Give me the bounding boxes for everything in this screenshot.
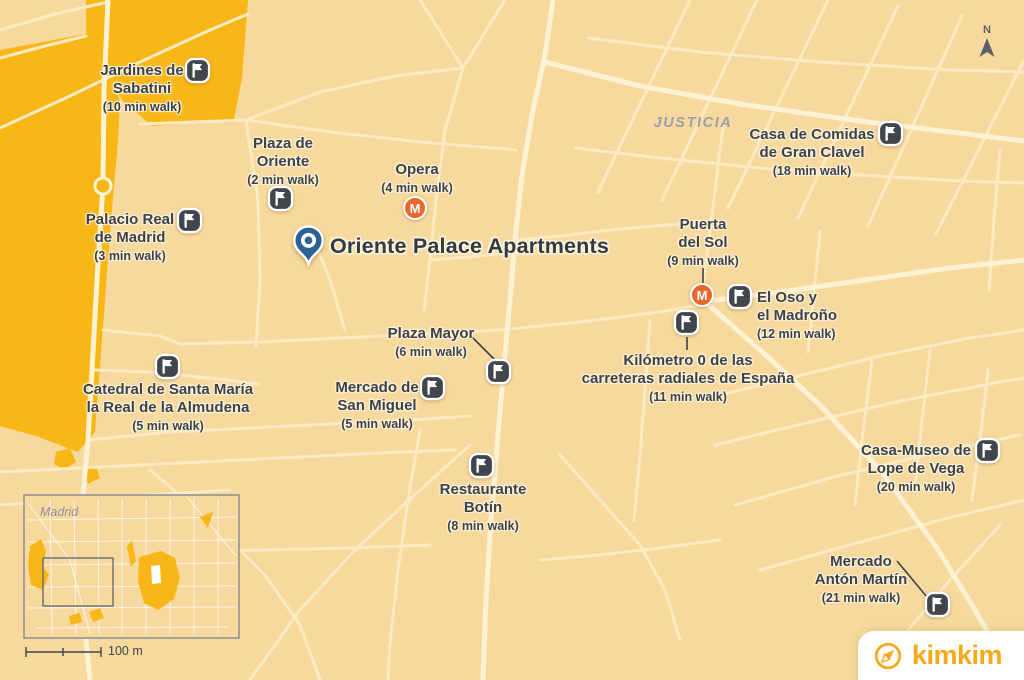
kimkim-brand-card: kimkim <box>858 631 1024 680</box>
poi-name: Botín <box>440 499 527 517</box>
poi-walk-time: (21 min walk) <box>815 590 907 606</box>
poi-mercado-san-miguel: Mercado de San Miguel (5 min walk) <box>335 379 418 432</box>
poi-walk-time: (5 min walk) <box>83 418 253 434</box>
flag-icon-kilometro-0 <box>673 309 700 336</box>
poi-name: de Madrid <box>86 229 174 247</box>
flag-icon-casa-museo <box>974 437 1001 464</box>
poi-walk-time: (20 min walk) <box>861 479 971 495</box>
metro-icon-opera: M <box>403 196 427 220</box>
poi-walk-time: (9 min walk) <box>667 253 739 269</box>
poi-jardines-de-sabatini: Jardines de Sabatini (10 min walk) <box>100 62 183 115</box>
poi-name: Plaza Mayor <box>388 325 475 343</box>
poi-name: El Oso y <box>757 289 837 307</box>
poi-name: Mercado <box>815 553 907 571</box>
flag-icon-el-oso <box>726 283 753 310</box>
flag-icon-botin <box>468 452 495 479</box>
flag-icon-casa-de-comidas <box>877 120 904 147</box>
poi-name: Puerta <box>667 216 739 234</box>
flag-icon-plaza-mayor <box>485 358 512 385</box>
poi-name: carreteras radiales de España <box>582 370 795 388</box>
poi-name: de Gran Clavel <box>749 144 874 162</box>
poi-name: Mercado de <box>335 379 418 397</box>
poi-name: Plaza de <box>247 135 319 153</box>
poi-plaza-mayor: Plaza Mayor (6 min walk) <box>388 325 475 360</box>
flag-icon-san-miguel <box>419 374 446 401</box>
poi-plaza-de-oriente: Plaza de Oriente (2 min walk) <box>247 135 319 188</box>
compass-icon <box>873 641 903 671</box>
neighborhood-label-justicia: JUSTICIA <box>654 115 733 131</box>
poi-name: Restaurante <box>440 481 527 499</box>
inset-city-label: Madrid <box>40 505 78 519</box>
poi-name: del Sol <box>667 234 739 252</box>
flag-icon-catedral <box>154 353 181 380</box>
flag-icon-palacio-real <box>176 207 203 234</box>
poi-name: Oriente <box>247 153 319 171</box>
poi-el-oso-y-el-madrono: El Oso y el Madroño (12 min walk) <box>757 289 837 342</box>
poi-name: Casa de Comidas <box>749 126 874 144</box>
main-place-title: Oriente Palace Apartments <box>330 234 609 259</box>
poi-mercado-anton-martin: Mercado Antón Martín (21 min walk) <box>815 553 907 606</box>
flag-icon-jardines <box>184 57 211 84</box>
scale-bar-label: 100 m <box>108 644 143 658</box>
north-indicator: N <box>975 24 999 36</box>
poi-walk-time: (8 min walk) <box>440 518 527 534</box>
metro-letter: M <box>410 201 421 216</box>
poi-puerta-del-sol: Puerta del Sol (9 min walk) <box>667 216 739 269</box>
poi-name: Palacio Real <box>86 211 174 229</box>
poi-name: San Miguel <box>335 397 418 415</box>
poi-casa-de-comidas: Casa de Comidas de Gran Clavel (18 min w… <box>749 126 874 179</box>
poi-walk-time: (4 min walk) <box>381 180 453 196</box>
metro-letter: M <box>697 288 708 303</box>
poi-name: Kilómetro 0 de las <box>582 352 795 370</box>
poi-kilometro-0: Kilómetro 0 de las carreteras radiales d… <box>582 352 795 405</box>
metro-icon-puerta-del-sol: M <box>690 283 714 307</box>
map-canvas: Jardines de Sabatini (10 min walk) Plaza… <box>0 0 1024 680</box>
poi-name: el Madroño <box>757 307 837 325</box>
brand-name: kimkim <box>912 641 1002 669</box>
north-label: N <box>975 24 999 36</box>
poi-walk-time: (11 min walk) <box>582 389 795 405</box>
poi-walk-time: (5 min walk) <box>335 416 418 432</box>
poi-walk-time: (2 min walk) <box>247 172 319 188</box>
poi-opera: Opera (4 min walk) <box>381 161 453 196</box>
poi-name: la Real de la Almudena <box>83 399 253 417</box>
poi-name: Lope de Vega <box>861 460 971 478</box>
location-pin-icon <box>292 224 325 272</box>
poi-restaurante-botin: Restaurante Botín (8 min walk) <box>440 481 527 534</box>
park-roundabout <box>95 178 111 194</box>
flag-icon-plaza-de-oriente <box>267 185 294 212</box>
poi-walk-time: (3 min walk) <box>86 248 174 264</box>
poi-walk-time: (6 min walk) <box>388 344 475 360</box>
poi-name: Catedral de Santa María <box>83 381 253 399</box>
poi-name: Casa-Museo de <box>861 442 971 460</box>
flag-icon-anton-martin <box>924 591 951 618</box>
poi-name: Opera <box>381 161 453 179</box>
poi-palacio-real: Palacio Real de Madrid (3 min walk) <box>86 211 174 264</box>
poi-name: Antón Martín <box>815 571 907 589</box>
north-arrow-icon <box>980 38 995 57</box>
poi-name: Sabatini <box>100 80 183 98</box>
poi-name: Jardines de <box>100 62 183 80</box>
poi-catedral-almudena: Catedral de Santa María la Real de la Al… <box>83 381 253 434</box>
poi-walk-time: (12 min walk) <box>757 326 837 342</box>
poi-walk-time: (18 min walk) <box>749 163 874 179</box>
poi-casa-museo-lope-de-vega: Casa-Museo de Lope de Vega (20 min walk) <box>861 442 971 495</box>
poi-walk-time: (10 min walk) <box>100 99 183 115</box>
